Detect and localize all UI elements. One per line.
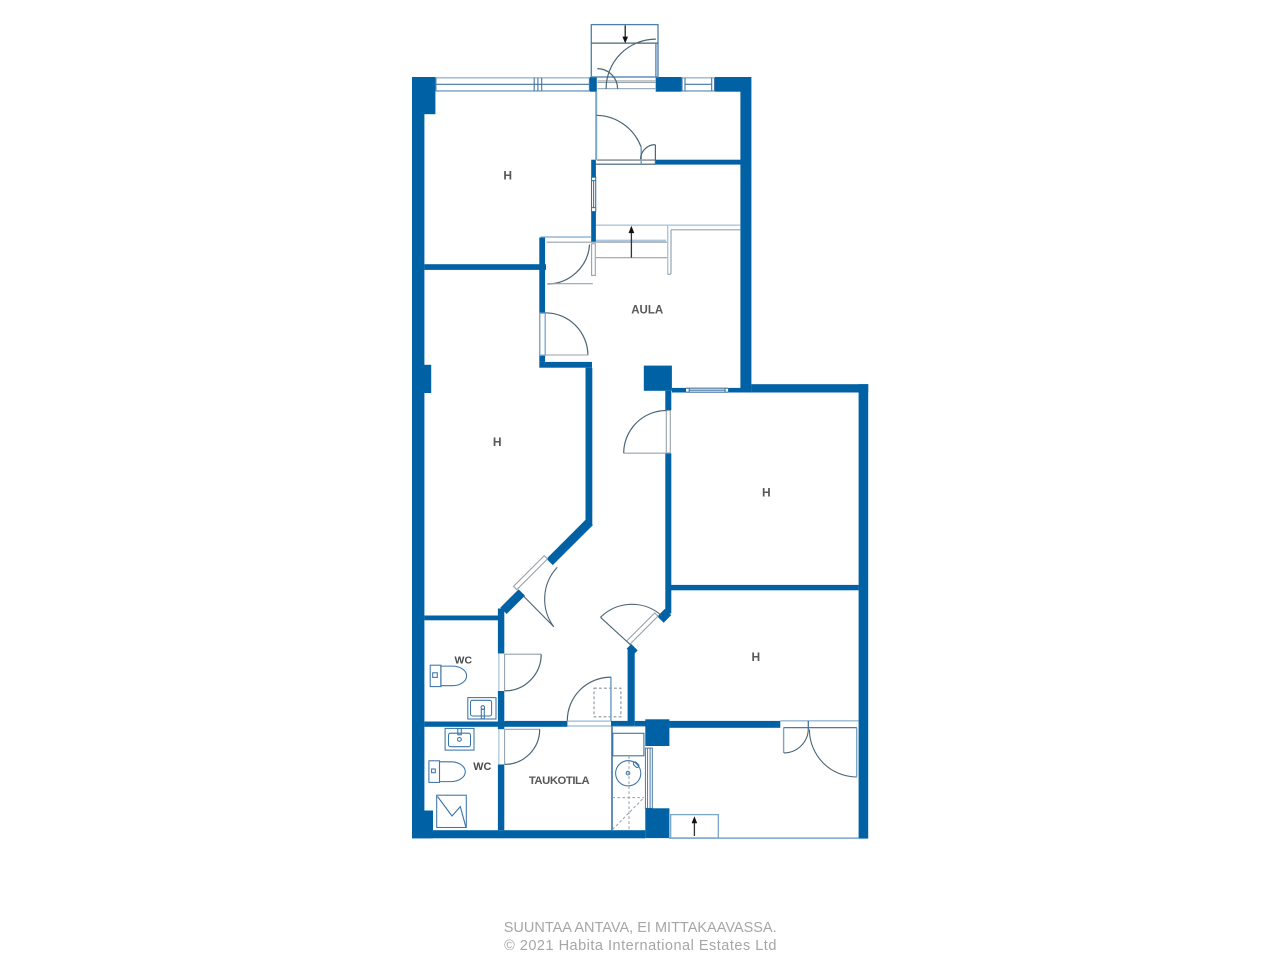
svg-text:H: H	[493, 435, 502, 449]
svg-text:H: H	[762, 486, 771, 500]
svg-text:TAUKOTILA: TAUKOTILA	[529, 775, 590, 787]
svg-text:SUUNTAA ANTAVA, EI MITTAKAAVAS: SUUNTAA ANTAVA, EI MITTAKAAVASSA.	[504, 920, 777, 936]
svg-text:WC: WC	[473, 761, 491, 773]
svg-text:WC: WC	[455, 654, 473, 666]
svg-text:H: H	[751, 650, 760, 664]
svg-text:© 2021 Habita International Es: © 2021 Habita International Estates Ltd	[504, 938, 777, 954]
svg-text:H: H	[503, 169, 512, 183]
svg-text:AULA: AULA	[631, 304, 663, 316]
